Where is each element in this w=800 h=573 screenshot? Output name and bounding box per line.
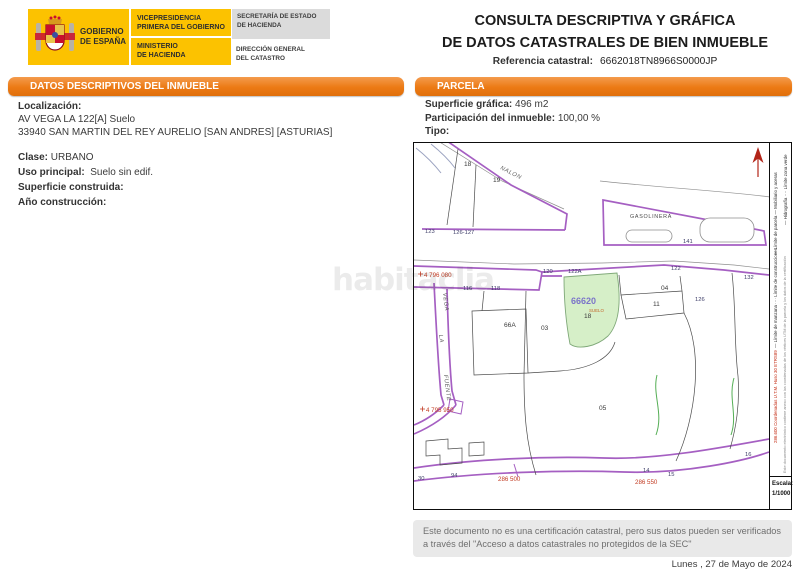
participacion-label: Participación del inmueble: bbox=[425, 113, 555, 124]
section-title: DATOS DESCRIPTIVOS DEL INMUEBLE bbox=[30, 81, 219, 92]
map-label: 120 bbox=[543, 269, 553, 275]
legend-hidrografia: — Hidrografía ···· Límite zona verde bbox=[783, 154, 788, 225]
watermark: habitaclia bbox=[332, 262, 494, 298]
participacion-value: 100,00 % bbox=[558, 113, 600, 124]
section-bar-parcela: PARCELA bbox=[415, 77, 792, 96]
map-label: 122A bbox=[568, 269, 582, 275]
legend-limite-manzana: — Límite de manzana ···· Límite de const… bbox=[773, 248, 778, 348]
legend-cert-note: Este documento electrónico contiene anex… bbox=[783, 256, 787, 473]
map-label: 14 bbox=[643, 468, 650, 474]
map-label: 122 bbox=[671, 266, 681, 272]
map-label: 126 bbox=[695, 297, 705, 303]
header-divider bbox=[131, 36, 231, 38]
section-bar-datos-descriptivos: DATOS DESCRIPTIVOS DEL INMUEBLE bbox=[8, 77, 404, 96]
spain-coat-of-arms-icon bbox=[35, 13, 75, 61]
footer-date: Lunes , 27 de Mayo de 2024 bbox=[413, 559, 792, 570]
map-label: 03 bbox=[541, 325, 549, 332]
map-label: 11 bbox=[653, 301, 660, 308]
superficie-grafica-label: Superficie gráfica: bbox=[425, 99, 512, 110]
map-label: 18 bbox=[464, 161, 472, 168]
map-label: LA bbox=[437, 335, 444, 344]
clase-label: Clase: bbox=[18, 152, 48, 163]
map-label: 05 bbox=[599, 405, 607, 412]
anio-construccion-label: Año construcción: bbox=[18, 197, 106, 208]
referencia-value: 6662018TN8966S0000JP bbox=[600, 56, 717, 67]
footer-disclaimer: Este documento no es una certificación c… bbox=[413, 520, 792, 557]
map-label: 16 bbox=[745, 452, 751, 458]
scale-box: Escala: 1/1000 bbox=[769, 476, 791, 509]
cadastral-map-frame: 1819NALON123126-127GASOLINERA141120122A1… bbox=[413, 142, 792, 510]
localizacion-value: AV VEGA LA 122[A] Suelo 33940 SAN MARTIN… bbox=[18, 113, 332, 139]
scale-value: 1/1000 bbox=[772, 490, 790, 500]
uso-principal-value: Suelo sin edif. bbox=[90, 167, 153, 178]
uso-principal-label: Uso principal: bbox=[18, 167, 85, 178]
vicepresidencia-label: VICEPRESIDENCIA PRIMERA DEL GOBIERNO bbox=[137, 14, 225, 33]
map-label: 141 bbox=[683, 239, 693, 245]
map-label: 4 795 950 bbox=[426, 407, 454, 414]
map-label: 132 bbox=[744, 275, 754, 281]
secretaria-estado-box: SECRETARÍA DE ESTADO DE HACIENDA bbox=[232, 9, 330, 39]
map-label: 286 500 bbox=[498, 476, 521, 483]
map-label: 286 550 bbox=[635, 479, 658, 486]
tipo-label: Tipo: bbox=[425, 126, 449, 137]
gobierno-espana-label: GOBIERNO DE ESPAÑA bbox=[80, 27, 126, 48]
document-title: CONSULTA DESCRIPTIVA Y GRÁFICA DE DATOS … bbox=[418, 11, 792, 55]
map-label: 123 bbox=[425, 229, 435, 235]
map-label: GASOLINERA bbox=[630, 214, 672, 220]
localizacion-label: Localización: bbox=[18, 101, 81, 112]
map-label: 66620 bbox=[571, 296, 596, 306]
section-title: PARCELA bbox=[437, 81, 485, 92]
clase-value: URBANO bbox=[51, 152, 94, 163]
datos-inmueble-panel: Localización: AV VEGA LA 122[A] Suelo 33… bbox=[18, 100, 332, 210]
ministerio-label: MINISTERIO DE HACIENDA bbox=[137, 42, 186, 61]
map-label: 126-127 bbox=[453, 230, 474, 236]
direccion-general-label: DIRECCIÓN GENERAL DEL CATASTRO bbox=[236, 46, 305, 64]
referencia-catastral-line: Referencia catastral:6662018TN8966S0000J… bbox=[418, 56, 792, 67]
map-label: 94 bbox=[451, 473, 458, 479]
superficie-construida-label: Superficie construida: bbox=[18, 182, 124, 193]
map-label: 30 bbox=[418, 476, 424, 482]
legend-coordenadas-utm: 286.600 Coordenadas U.T.M. Huso 30 ETRS8… bbox=[773, 350, 778, 443]
cadastral-certificate-page: { "header": { "gobierno": "GOBIERNO\nDE … bbox=[0, 0, 800, 573]
referencia-label: Referencia catastral: bbox=[493, 56, 593, 67]
north-arrow-icon bbox=[753, 147, 764, 177]
map-label: 15 bbox=[668, 472, 674, 478]
legend-limite-parcela: — Límite de parcela — Mobiliario y acera… bbox=[773, 172, 778, 255]
superficie-grafica-value: 496 m2 bbox=[515, 99, 548, 110]
parcela-panel: Superficie gráfica: 496 m2 Participación… bbox=[425, 98, 600, 139]
map-legend-column: — Límite de parcela — Mobiliario y acera… bbox=[769, 143, 791, 476]
map-label: 18 bbox=[584, 313, 592, 320]
cadastral-map: 1819NALON123126-127GASOLINERA141120122A1… bbox=[414, 143, 769, 508]
map-label: 66A bbox=[504, 322, 516, 329]
map-label: FUENTE bbox=[442, 375, 451, 402]
map-label: 19 bbox=[493, 177, 501, 184]
map-label: 04 bbox=[661, 285, 669, 292]
scale-label: Escala: bbox=[772, 480, 790, 490]
